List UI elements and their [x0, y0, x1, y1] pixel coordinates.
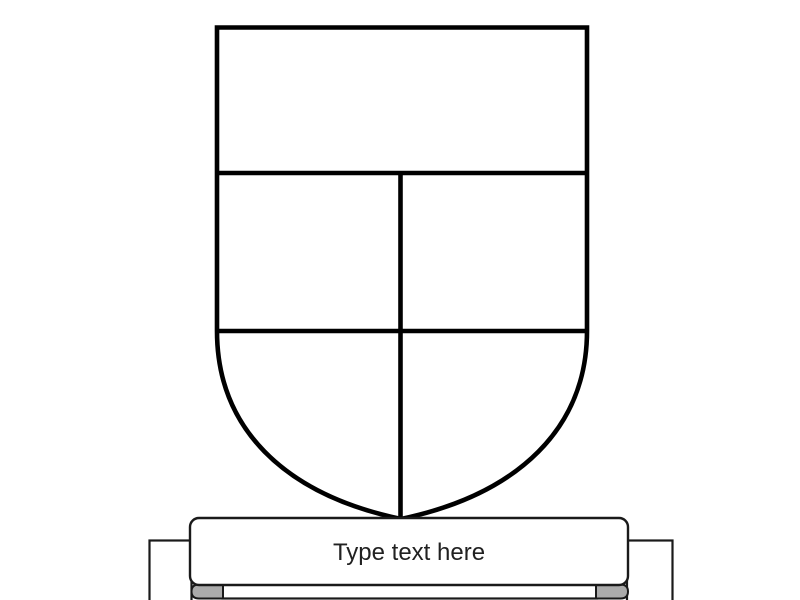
banner-placeholder-text[interactable]: Type text here	[333, 539, 485, 566]
coat-of-arms: Type text here	[0, 0, 800, 600]
banner-tail-left	[150, 541, 192, 600]
banner-fold-left	[192, 585, 224, 599]
banner-tail-right	[627, 541, 673, 600]
banner-fold-right	[596, 585, 628, 599]
shield[interactable]	[217, 28, 587, 520]
drawing-canvas: Type text here	[0, 0, 800, 600]
